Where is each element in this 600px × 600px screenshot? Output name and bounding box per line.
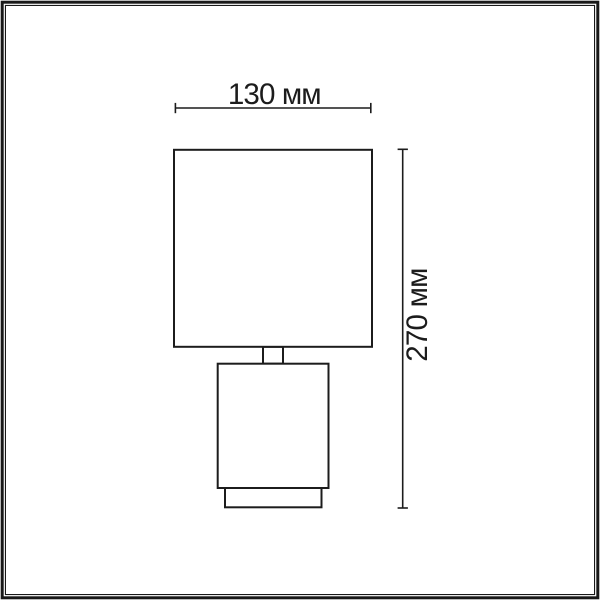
svg-text:130 мм: 130 мм xyxy=(228,78,321,111)
svg-text:270 мм: 270 мм xyxy=(401,268,434,362)
